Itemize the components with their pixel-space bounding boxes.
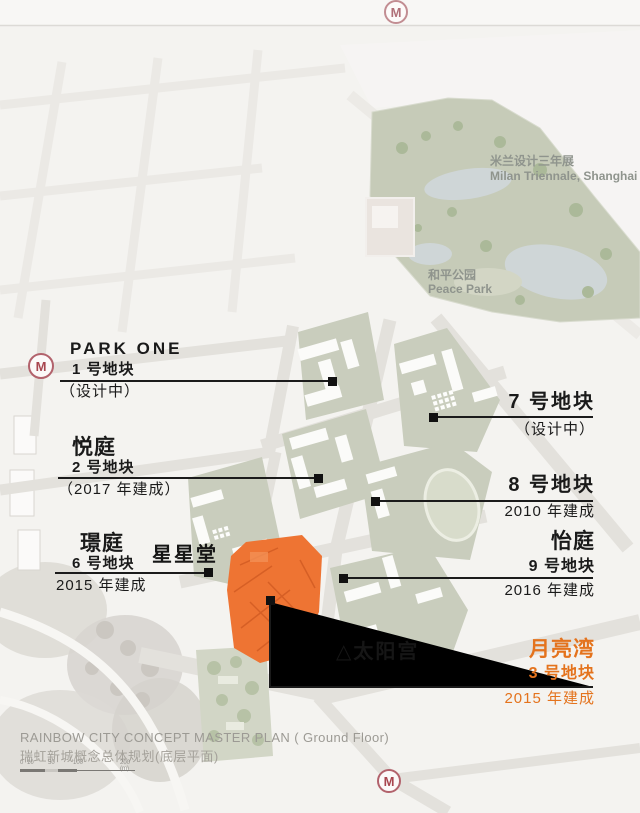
- plot-9-status: 2016 年建成: [504, 583, 595, 600]
- plot-3-number: 3 号地块: [529, 665, 595, 683]
- plot-2-name: 悦庭: [72, 436, 116, 459]
- plot-9-number: 9 号地块: [529, 558, 595, 576]
- star-hall-label: 星星堂: [152, 544, 218, 566]
- plot-7-number: 7 号地块: [508, 391, 595, 413]
- plot-1-status: （设计中）: [60, 384, 140, 401]
- plot-3-marker: [266, 596, 275, 605]
- plot-7-status: （设计中）: [515, 422, 595, 439]
- plot-6-number: 6 号地块: [72, 556, 135, 573]
- plot-1-number: 1 号地块: [72, 362, 135, 379]
- metro-station-icon: M: [385, 1, 407, 23]
- triennale-label-zh: 米兰设计三年展: [490, 155, 574, 168]
- svg-text:M: M: [36, 359, 47, 374]
- scale-tick: 0: [20, 760, 23, 766]
- plot-6-name: 璟庭: [80, 532, 124, 555]
- master-plan-page: M M M: [0, 0, 640, 813]
- plan-title-en: RAINBOW CITY CONCEPT MASTER PLAN ( Groun…: [20, 730, 389, 745]
- triennale-label-en: Milan Triennale, Shanghai: [490, 170, 637, 183]
- metro-station-icon: M: [29, 354, 53, 378]
- plot-2-status: （2017 年建成）: [58, 482, 181, 499]
- plot-8-status: 2010 年建成: [504, 504, 595, 521]
- scale-bar: 0 10 50 100 200 (m): [20, 760, 140, 776]
- plot-7-marker: [429, 413, 438, 422]
- plot-9-name: 怡庭: [551, 530, 595, 553]
- plot-6-status: 2015 年建成: [56, 578, 147, 595]
- plot-1-marker: [328, 377, 337, 386]
- plot-3-status: 2015 年建成: [504, 691, 595, 708]
- peace-park-label-en: Peace Park: [428, 283, 492, 296]
- plot-2-marker: [314, 474, 323, 483]
- plot-8-marker: [371, 497, 380, 506]
- scale-tick: 50: [48, 760, 55, 766]
- metro-station-icon: M: [378, 770, 400, 792]
- plot-8-number: 8 号地块: [508, 474, 595, 496]
- peace-park-label-zh: 和平公园: [428, 269, 476, 282]
- svg-text:M: M: [391, 5, 402, 20]
- scale-tick: 10: [27, 760, 34, 766]
- svg-text:M: M: [384, 774, 395, 789]
- plot-6-marker: [204, 568, 213, 577]
- plot-1-name: PARK ONE: [70, 340, 182, 359]
- sun-palace-label: △太阳宫: [336, 641, 419, 663]
- plot-9-marker: [339, 574, 348, 583]
- plot-3-name: 月亮湾: [529, 638, 595, 661]
- plot-2-number: 2 号地块: [72, 460, 135, 477]
- scale-tick: 100: [73, 760, 83, 766]
